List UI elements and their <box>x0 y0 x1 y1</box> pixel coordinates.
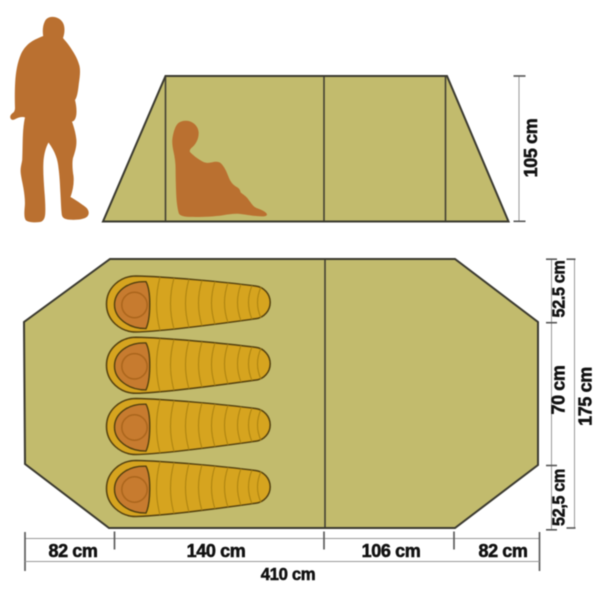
svg-text:140 cm: 140 cm <box>187 541 246 561</box>
svg-text:52,5 cm: 52,5 cm <box>549 469 569 526</box>
svg-text:82 cm: 82 cm <box>48 541 97 561</box>
svg-text:82 cm: 82 cm <box>478 541 527 561</box>
svg-text:106 cm: 106 cm <box>362 541 421 561</box>
svg-text:410 cm: 410 cm <box>261 563 316 584</box>
svg-text:52.5 cm: 52.5 cm <box>549 260 569 317</box>
svg-text:105 cm: 105 cm <box>521 119 541 178</box>
svg-text:175 cm: 175 cm <box>576 367 596 426</box>
svg-text:70 cm: 70 cm <box>549 365 569 414</box>
